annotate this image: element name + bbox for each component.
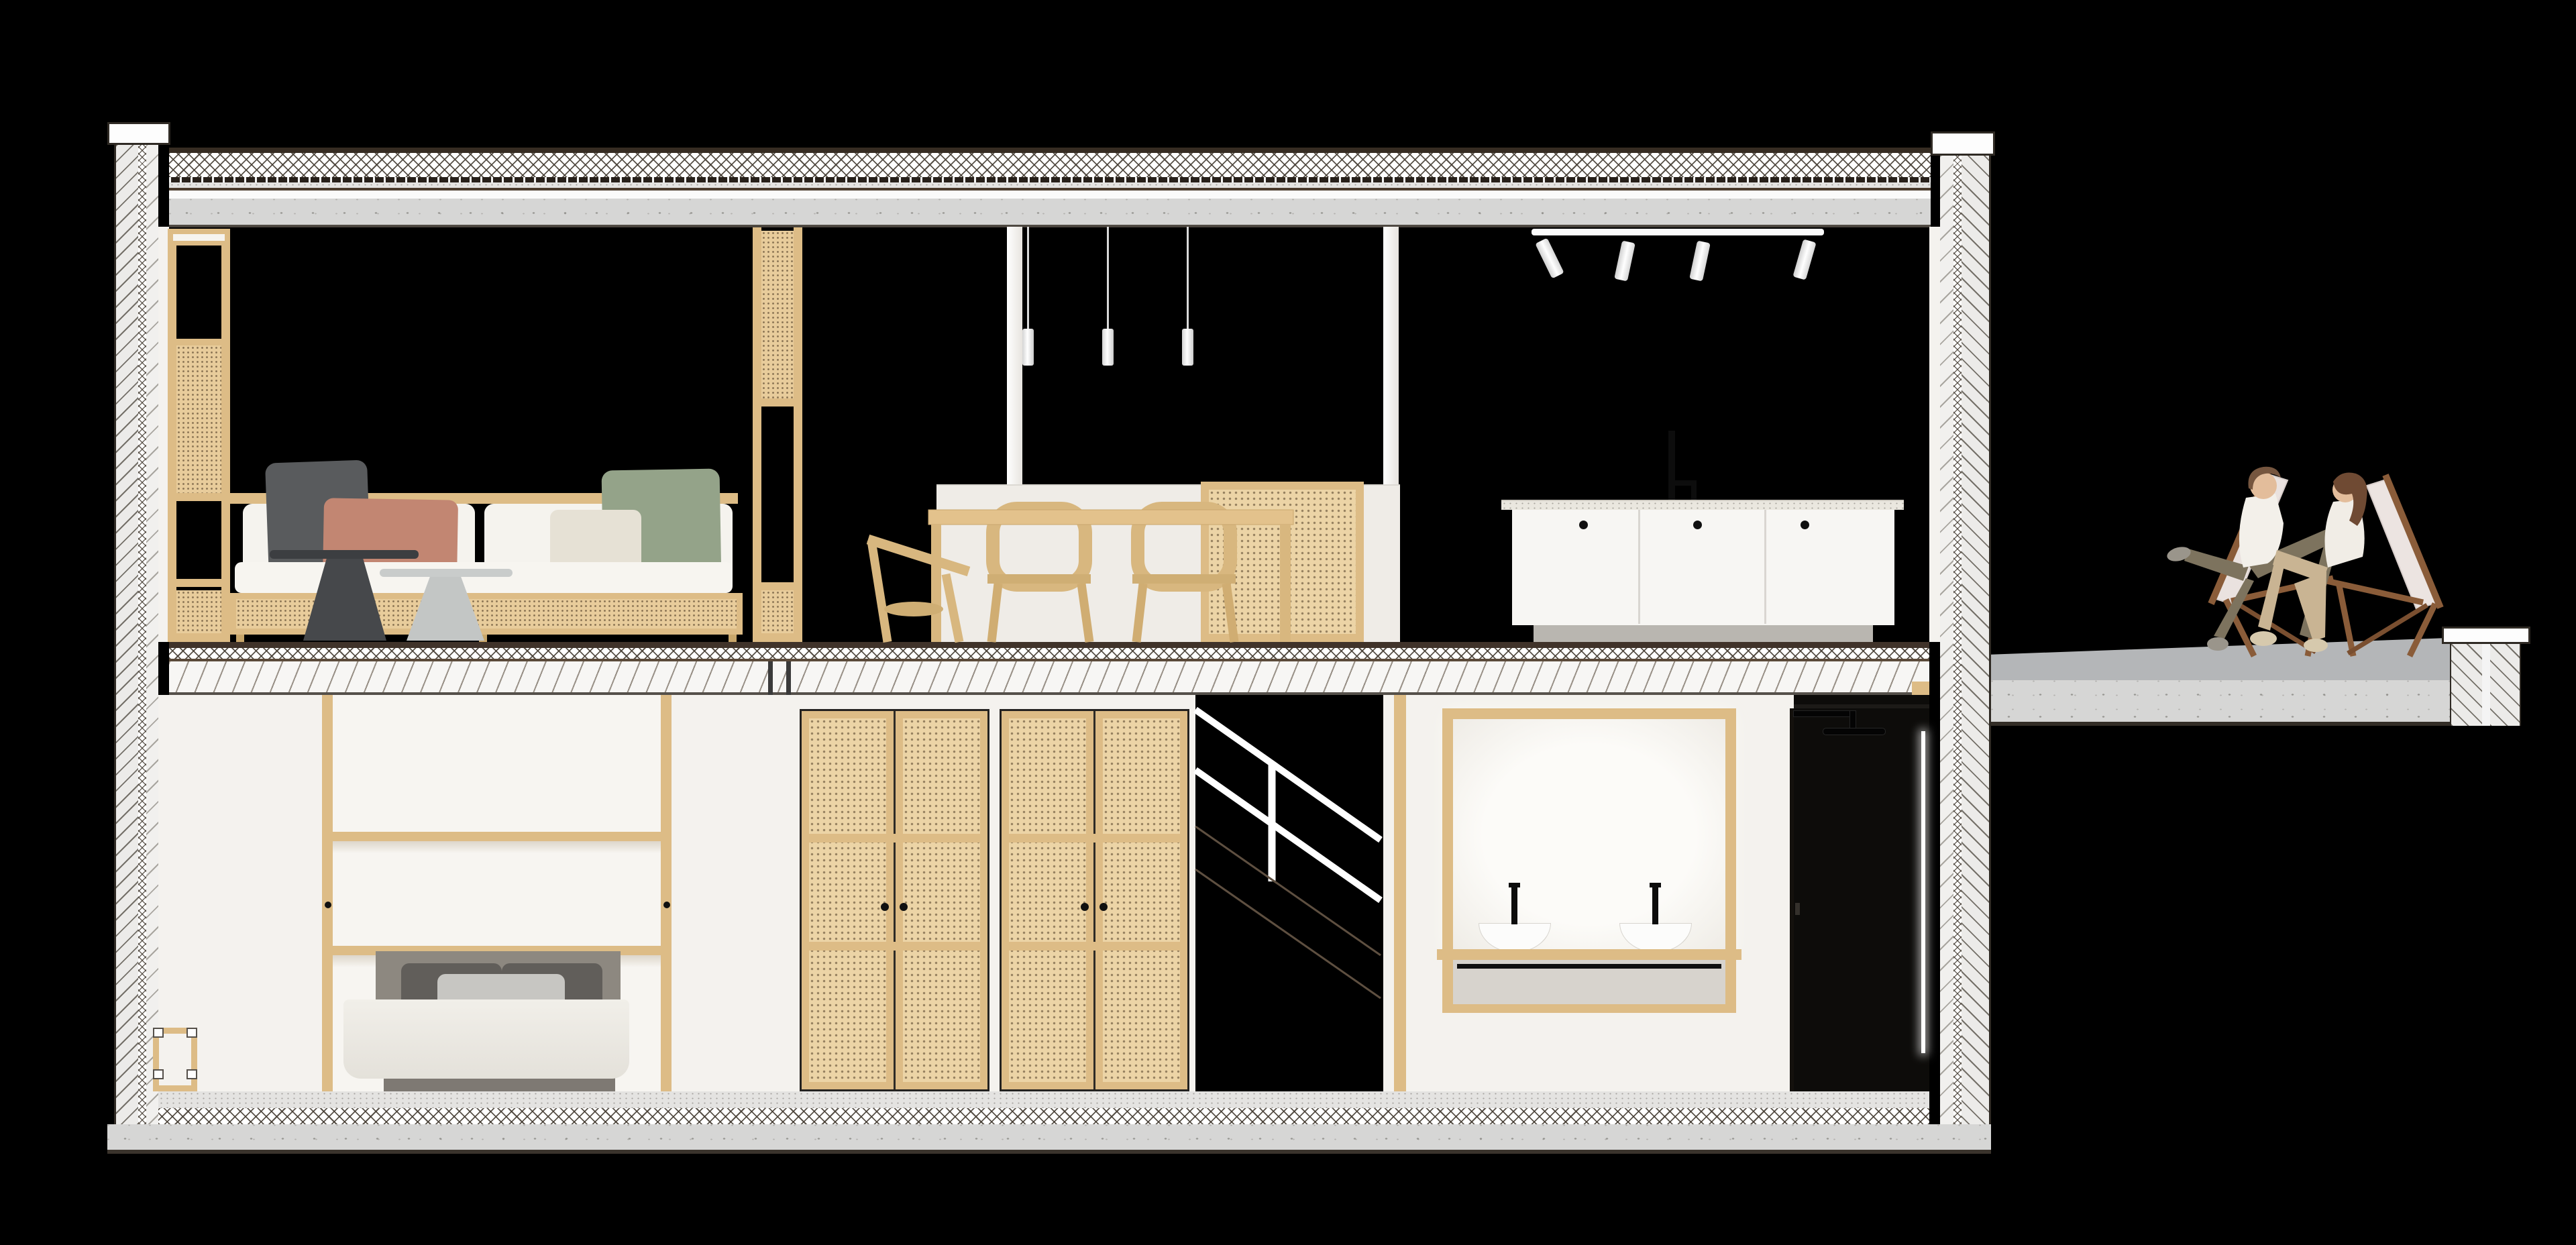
dining-chair-profile — [868, 539, 969, 642]
stair-railing — [1195, 710, 1381, 998]
section-drawing — [0, 0, 2576, 1245]
vector-overlay — [0, 0, 2576, 1245]
dining-chair — [987, 508, 1091, 642]
dining-table — [928, 510, 1293, 642]
dining-chair — [1132, 508, 1236, 642]
